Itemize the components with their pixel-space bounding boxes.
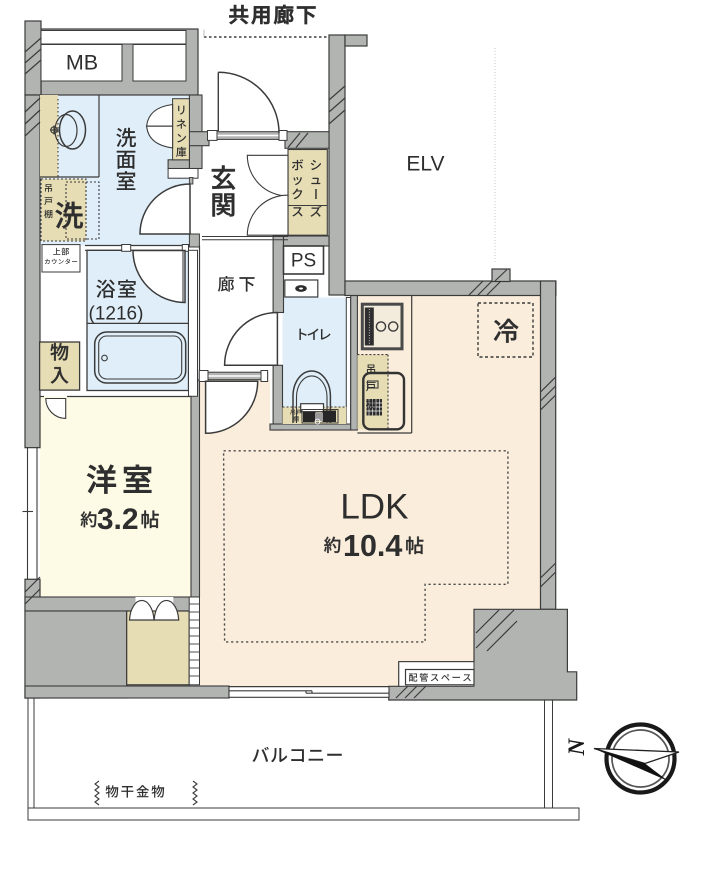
svg-text:(1216): (1216) (89, 304, 144, 325)
svg-text:MB: MB (66, 51, 98, 75)
svg-text:PS: PS (291, 251, 316, 272)
svg-text:10.4: 10.4 (343, 529, 402, 563)
svg-text:LDK: LDK (340, 488, 408, 527)
svg-text:ELV: ELV (406, 153, 444, 176)
svg-text:3.2: 3.2 (97, 503, 139, 536)
svg-text:N: N (564, 737, 589, 756)
